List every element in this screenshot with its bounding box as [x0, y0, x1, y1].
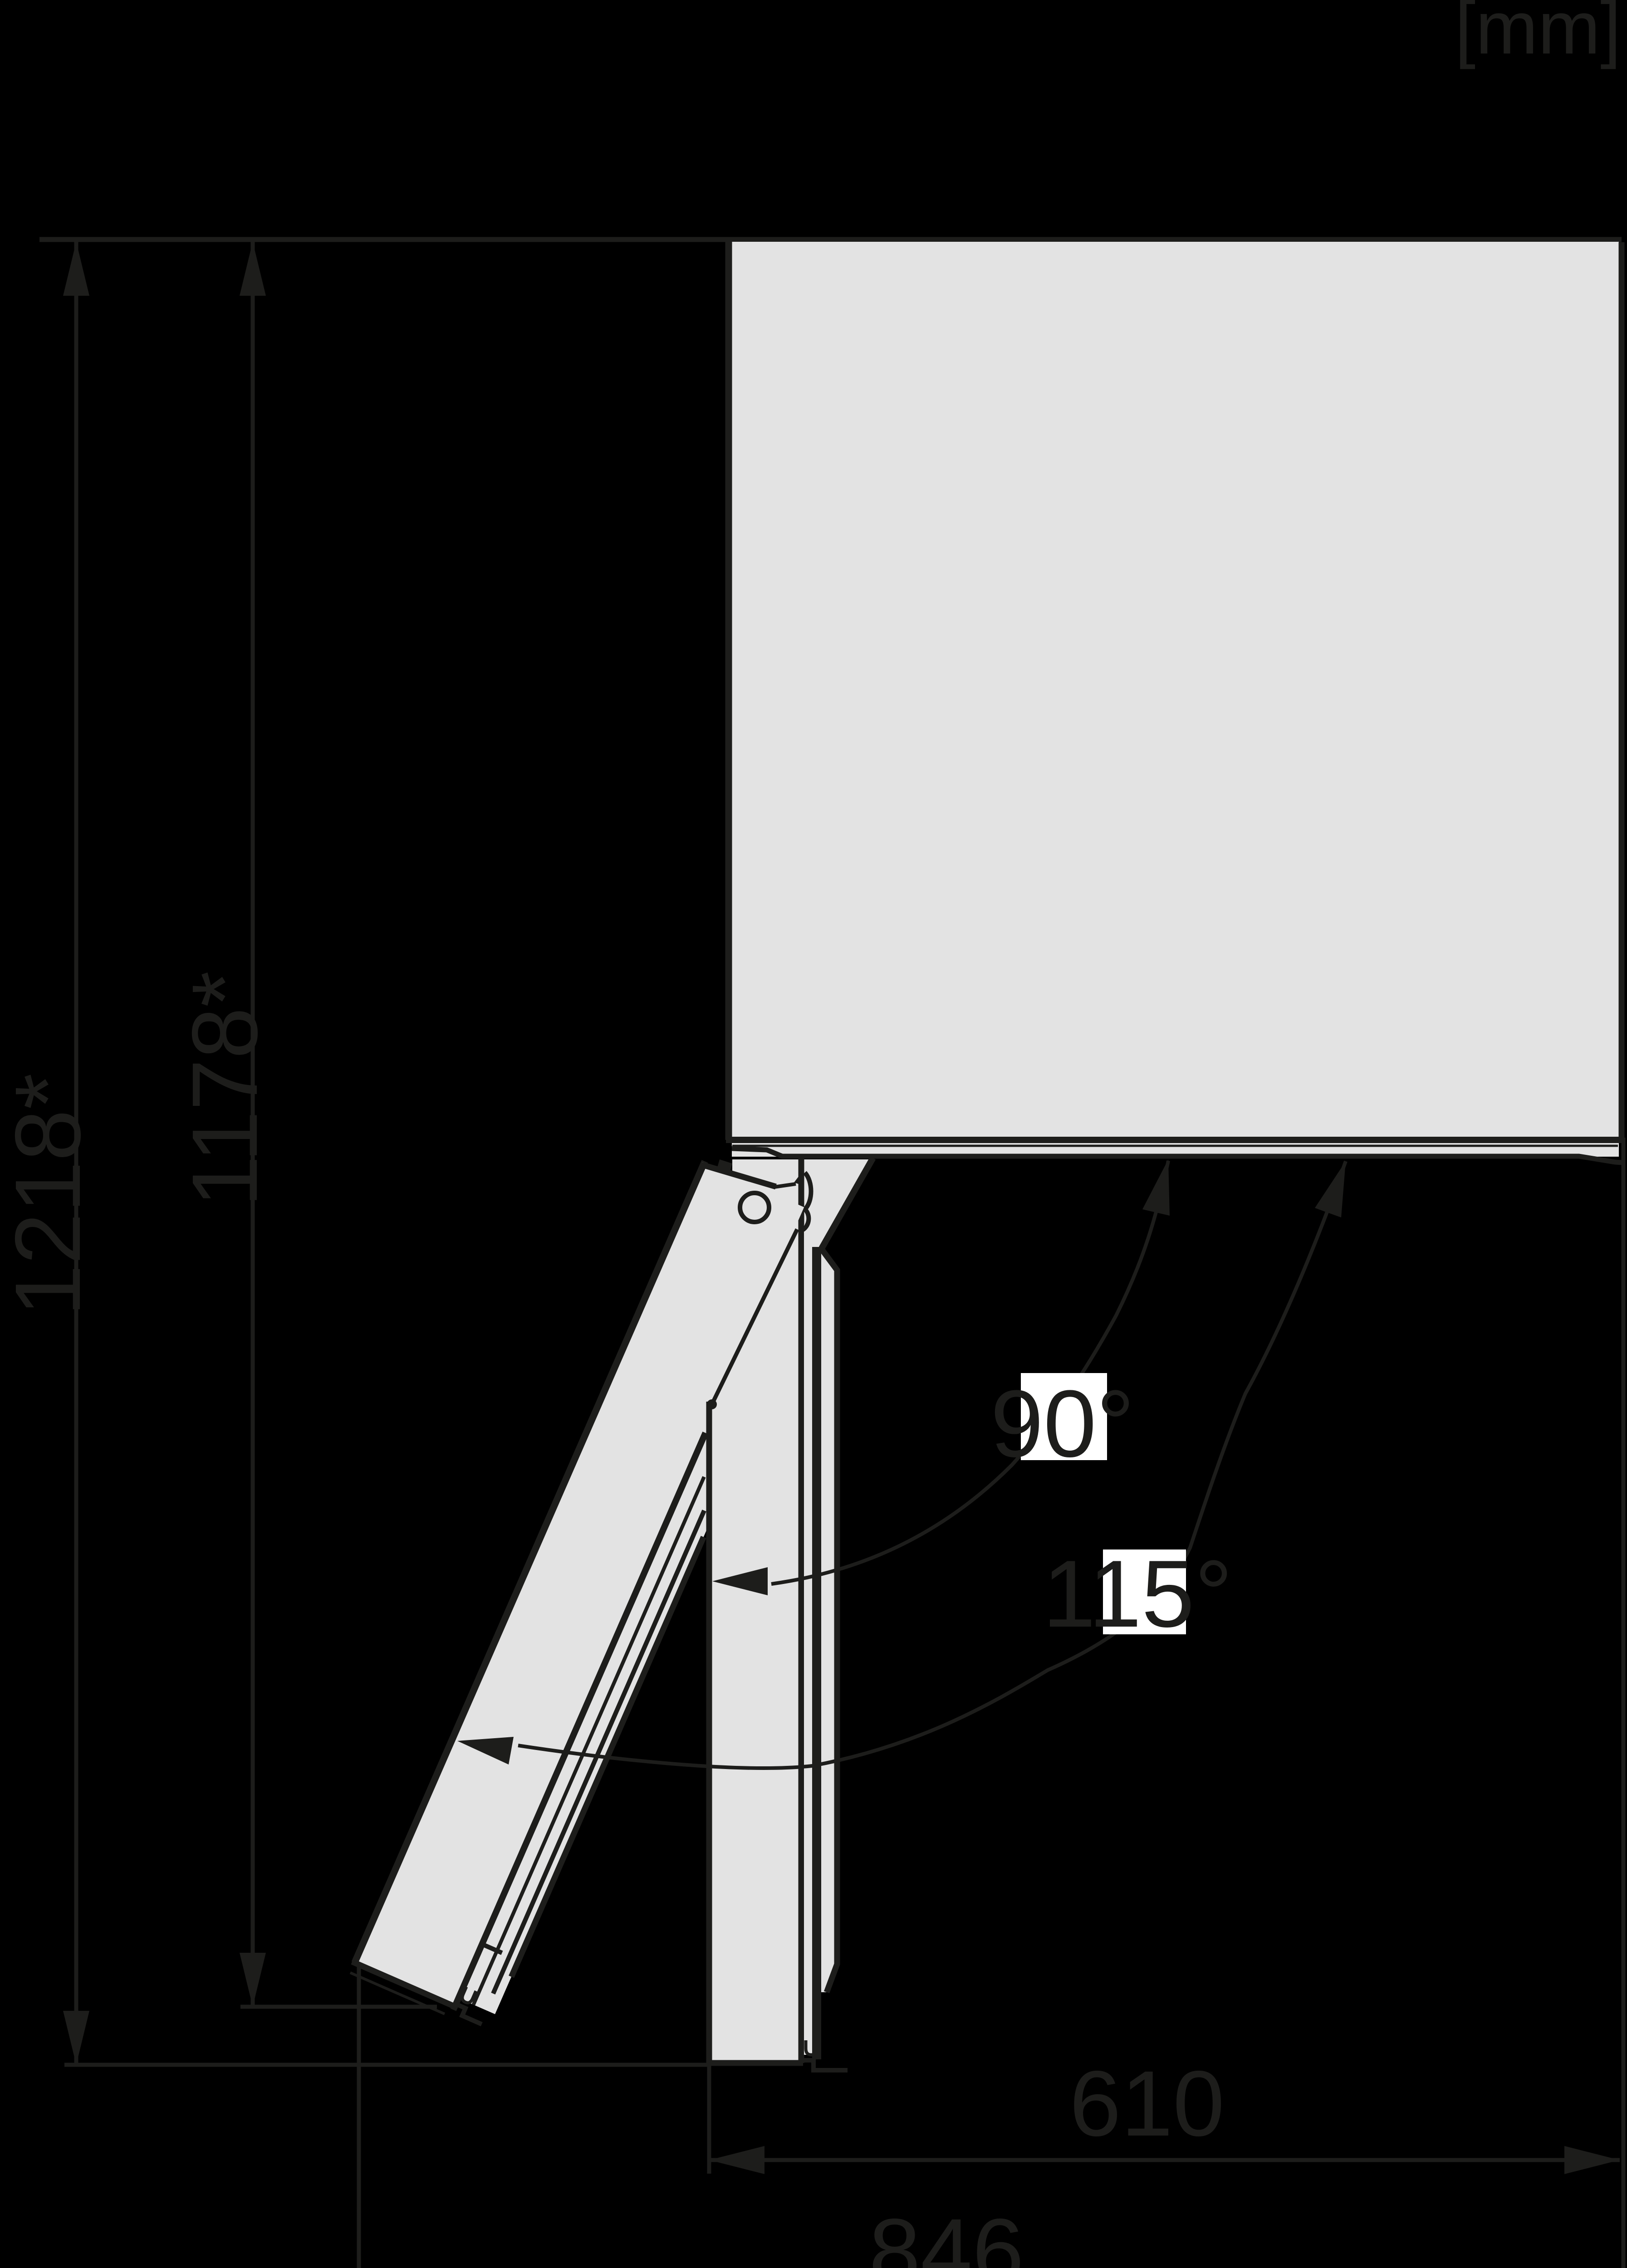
- svg-text:[mm]: [mm]: [1455, 0, 1621, 69]
- svg-text:846: 846: [869, 2200, 1024, 2268]
- svg-text:90°: 90°: [990, 1370, 1135, 1477]
- svg-text:1178*: 1178*: [173, 971, 277, 1207]
- svg-text:1218*: 1218*: [0, 1073, 100, 1316]
- svg-text:115°: 115°: [1043, 1540, 1233, 1647]
- svg-text:610: 610: [1069, 2052, 1225, 2156]
